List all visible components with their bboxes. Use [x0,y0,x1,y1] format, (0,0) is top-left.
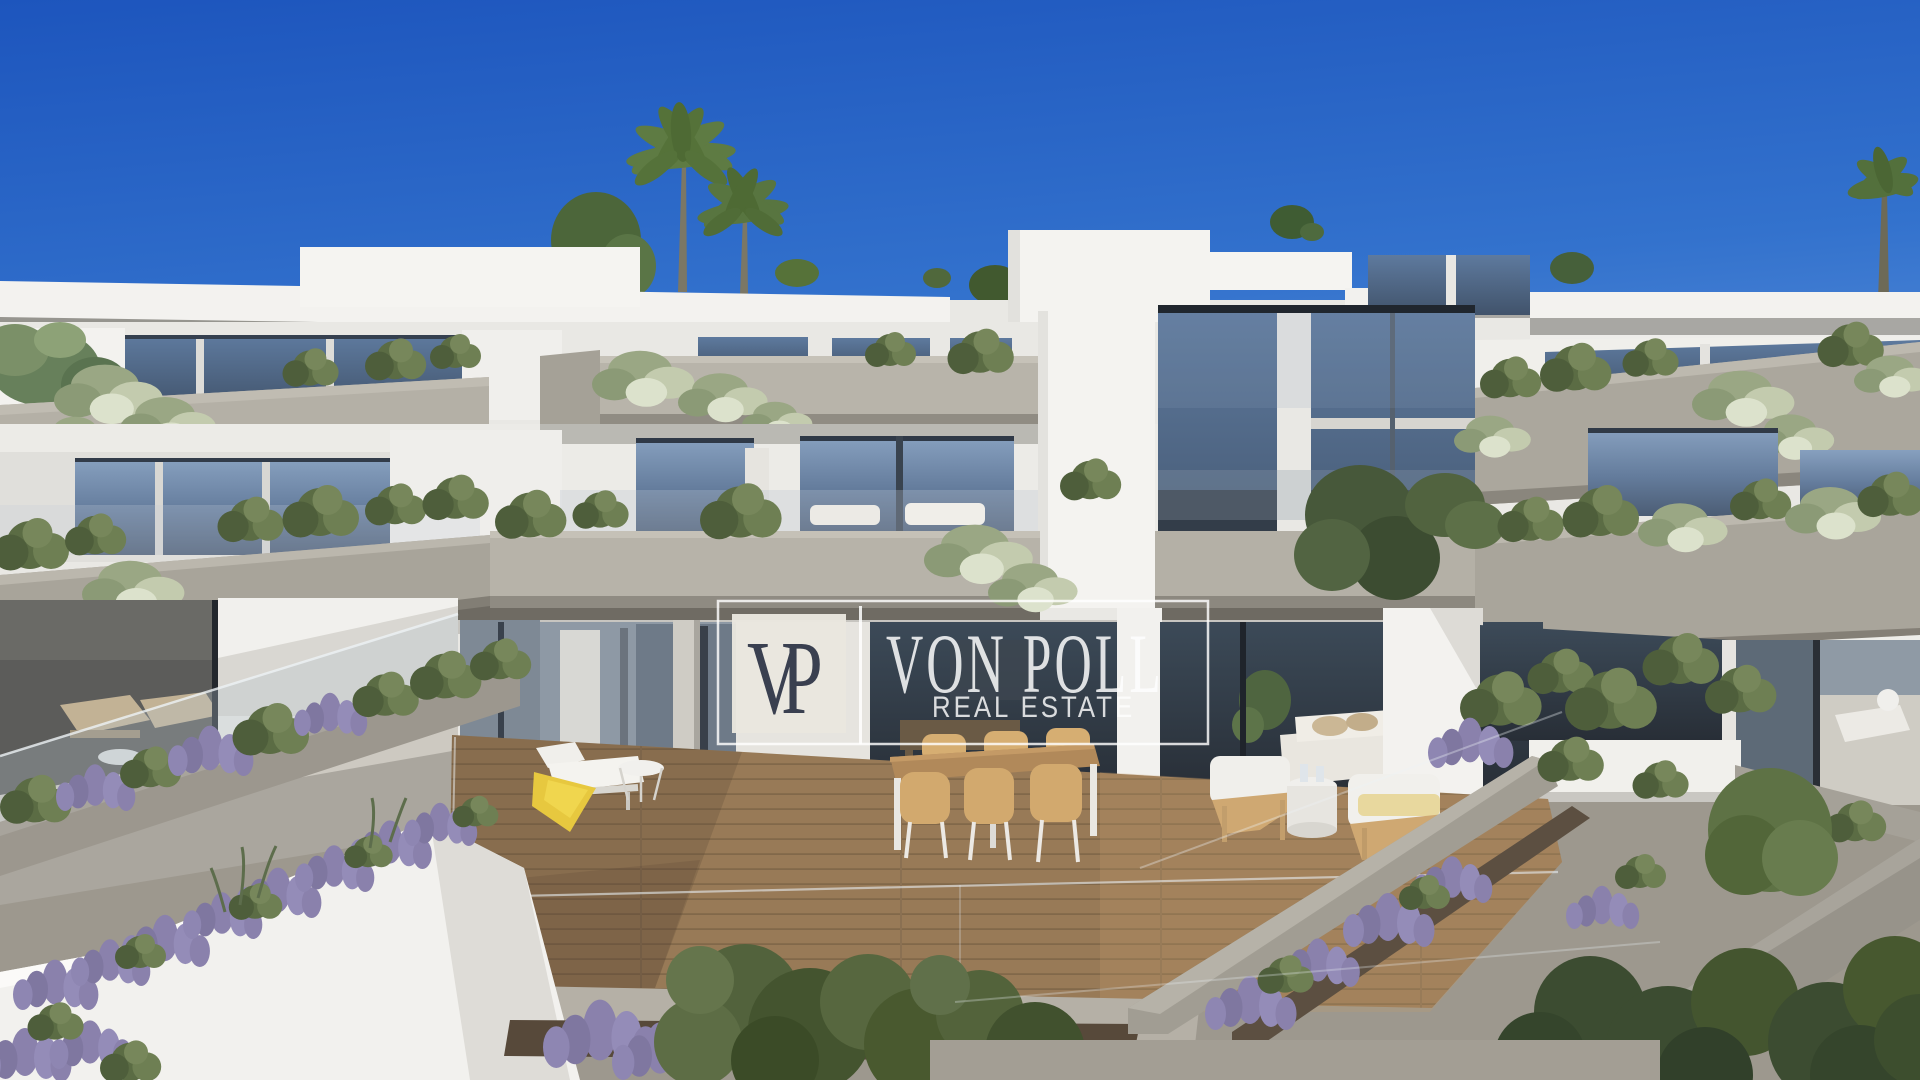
svg-text:P: P [781,619,823,736]
svg-text:REAL ESTATE: REAL ESTATE [932,690,1135,723]
